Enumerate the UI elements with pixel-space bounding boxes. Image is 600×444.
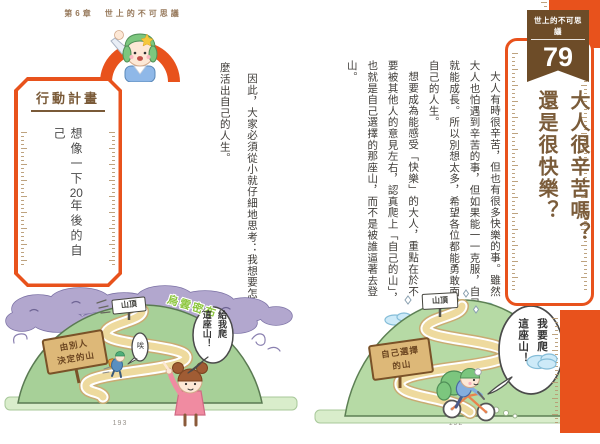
action-plan-content: 想像一下20年後的自己 bbox=[51, 127, 85, 271]
text-column: 大人也怕遇到辛苦的事，但如果能一一克服，自己 bbox=[464, 60, 484, 314]
side-bar-decoration bbox=[560, 310, 600, 433]
text-column: 也就是自己選擇的那座山，而不是被誰逼著去登 bbox=[362, 60, 382, 314]
series-label: 世上的不可思議 bbox=[531, 15, 585, 40]
right-page-body: 大人有時很辛苦，但也有很多快樂的事。雖然 大人也怕遇到辛苦的事，但如果能一一克服… bbox=[333, 60, 505, 314]
action-plan-box: 行動計畫 想像一下20年後的自己 bbox=[14, 77, 122, 287]
text-column: 麼活出自己的人生。 bbox=[210, 62, 237, 314]
text-column: 自己的人生。 bbox=[423, 60, 443, 314]
speech-bubble-text: 給我爬 這座山！ bbox=[199, 310, 229, 364]
chapter-header: 第6章 世上的不可思議 bbox=[58, 8, 188, 19]
divider-line bbox=[31, 110, 105, 112]
text-column: 要被其他人的意見左右，認真爬上「自己的山」， bbox=[382, 60, 402, 314]
text-column: 因此，大家必須從小就仔細地思考：我想要怎 bbox=[238, 62, 265, 314]
topic-number: 79 bbox=[527, 42, 589, 72]
summit-sign: 山頂 bbox=[422, 292, 459, 310]
book-spread: 第6章 世上的不可思議 行動計畫 想像一下20年後的自己 因此，大家必須從小就仔… bbox=[0, 0, 600, 444]
text-column: 大人有時很辛苦，但也有很多快樂的事。雖然 bbox=[485, 60, 505, 314]
sigh-text: 唉 bbox=[133, 340, 148, 351]
raised-fist bbox=[115, 31, 124, 40]
text-column: 山。 bbox=[341, 60, 361, 314]
gloomy-mountain-illustration: 烏雲密布 山頂 由別人 決定的山 唉 給我爬 這座山！ bbox=[0, 285, 300, 444]
left-page-body: 因此，大家必須從小就仔細地思考：我想要怎 麼活出自己的人生。 bbox=[180, 62, 265, 314]
text-column: 就能成長。所以別想太多，希望各位都能勇敢面對 bbox=[444, 60, 464, 314]
mascot-girl-illustration bbox=[95, 26, 185, 82]
text-column: 想要成為能感受「快樂」的大人，重點在於不 bbox=[403, 60, 423, 314]
action-plan-title: 行動計畫 bbox=[14, 88, 122, 107]
small-cloud bbox=[526, 351, 560, 371]
page-title: 大人很辛苦嗎？ 還是很快樂？ bbox=[528, 90, 594, 302]
